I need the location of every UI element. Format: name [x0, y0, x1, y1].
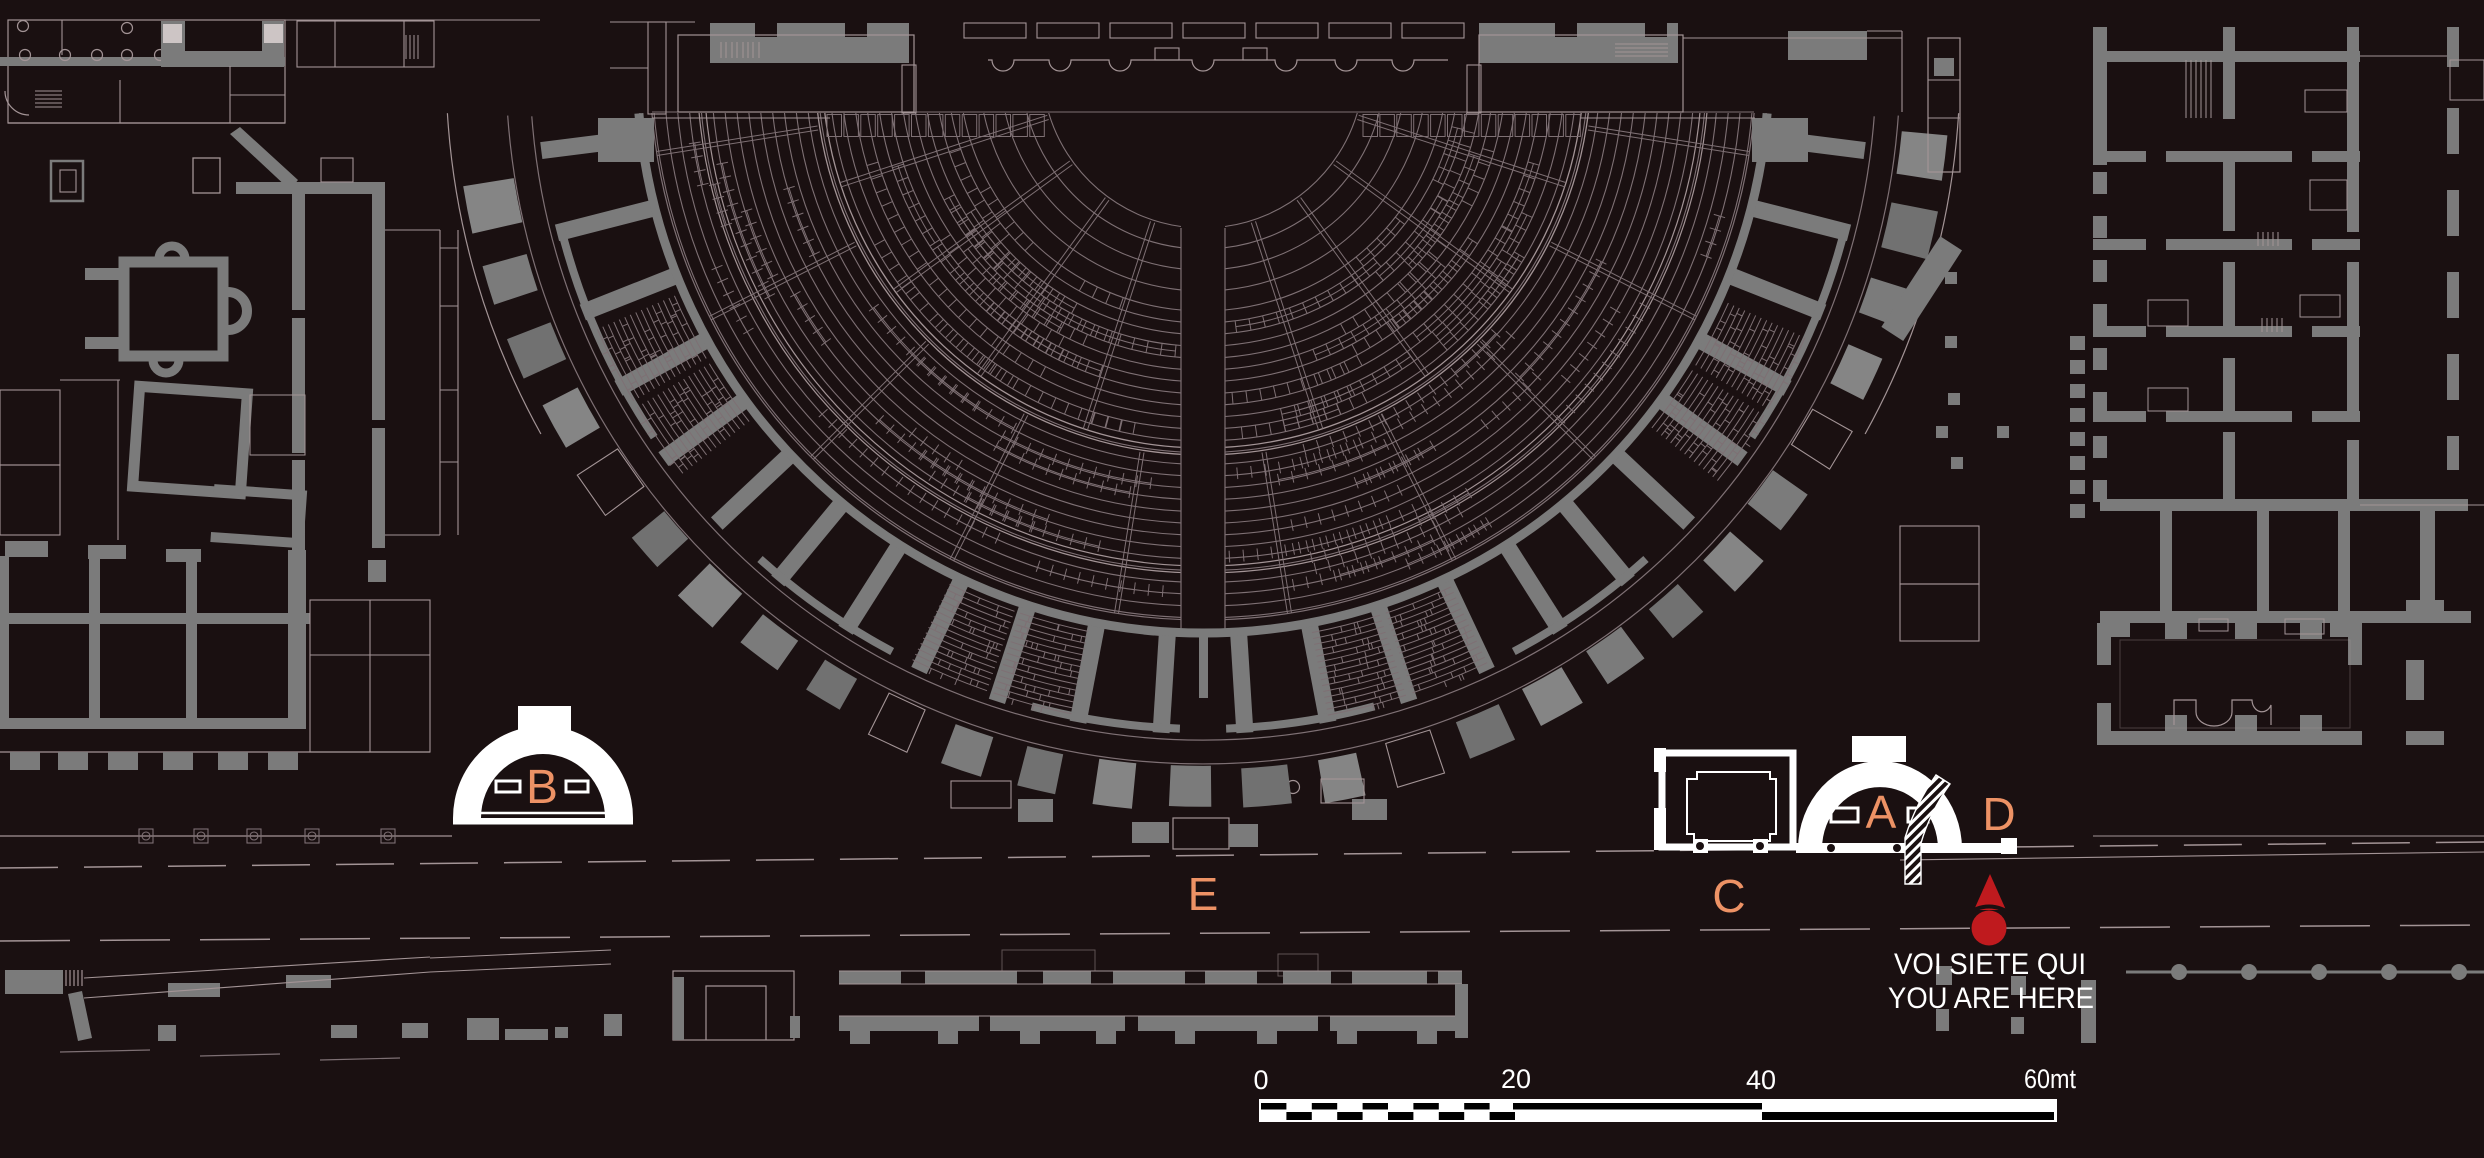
- svg-text:E: E: [1188, 868, 1219, 920]
- svg-text:40: 40: [1746, 1065, 1776, 1095]
- svg-text:A: A: [1866, 786, 1897, 838]
- svg-text:B: B: [526, 761, 558, 814]
- svg-text:60mt: 60mt: [2024, 1064, 2076, 1094]
- svg-text:0: 0: [1253, 1065, 1268, 1095]
- svg-text:C: C: [1712, 870, 1745, 922]
- svg-text:D: D: [1982, 788, 2015, 840]
- svg-text:YOU ARE HERE: YOU ARE HERE: [1888, 982, 2094, 1015]
- svg-text:VOI SIETE QUI: VOI SIETE QUI: [1894, 948, 2086, 981]
- svg-text:20: 20: [1501, 1064, 1531, 1094]
